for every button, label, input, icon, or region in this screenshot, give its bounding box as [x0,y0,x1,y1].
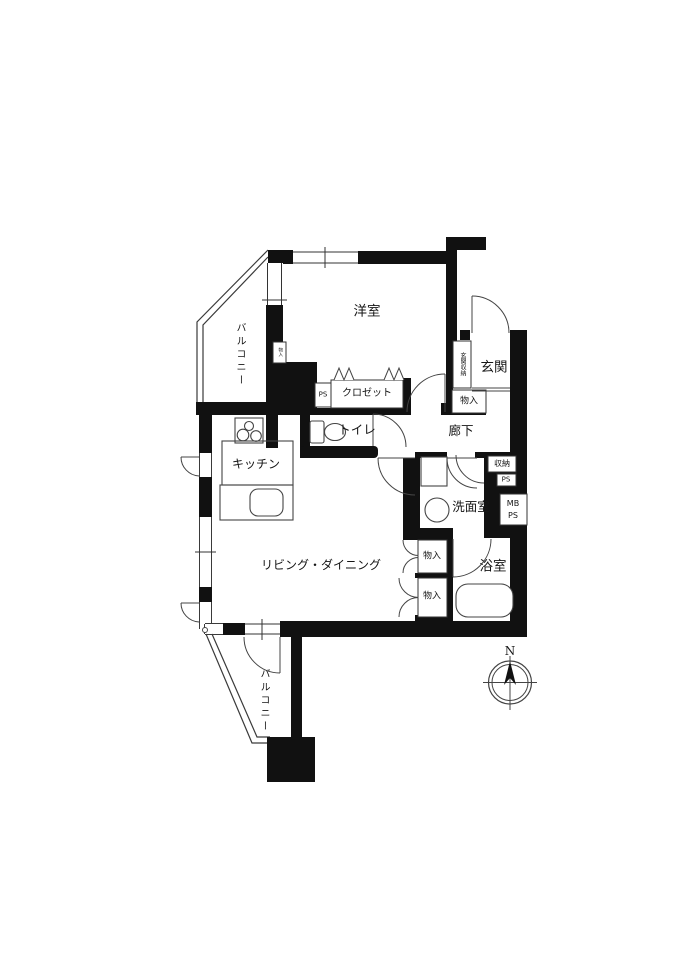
toilet-door-arc [373,414,406,447]
kitchen-counter-lower [220,485,293,520]
wash-basin [425,498,449,522]
corner-hinge-dot [203,628,208,633]
closet-fold-marks [334,368,404,380]
label-compass-north: N [505,645,516,657]
label-living-dining: リビング・ダイニング [261,559,381,571]
balcony-upper-outline [197,250,268,403]
storage-lower-fold-arc [399,578,419,598]
bathtub [456,584,513,617]
burner [251,431,262,442]
bedroom-door-arc [407,374,445,412]
label-meter-box-ps: PS [508,512,518,520]
hall-storage-door-arc [456,455,484,483]
label-wall-tag: 物入 [277,348,282,357]
burner [245,422,254,431]
storage-upper-fold-arc [403,540,419,556]
label-entrance-cabinet: 物入 [460,398,478,407]
storage-upper-fold-arc [403,558,419,574]
floorplan-page: 洋室 バルコニー 玄関 玄関収納 物入 クロゼット PS トイレ 廊下 キッチン… [0,0,690,976]
floorplan-drawing [0,0,690,976]
storage-lower-fold-arc [399,598,419,618]
label-closet: クロゼット [342,389,392,399]
label-storage-upper: 物入 [423,553,441,562]
label-bathroom: 浴室 [480,560,507,574]
kitchen-sink [250,489,283,516]
label-entrance: 玄関 [481,361,508,375]
label-kitchen: キッチン [232,458,280,470]
label-toilet: トイレ [338,424,376,437]
label-balcony-bottom: バルコニー [258,669,268,734]
washroom-fixtures [421,457,449,522]
side-door2-arc [181,603,199,622]
label-hallway: 廊下 [448,425,473,438]
label-entrance-tall-cabinet: 玄関収納 [459,352,465,376]
label-hall-ps: PS [502,477,511,484]
label-meter-box-mb: MB [507,500,519,508]
washer-space [421,457,447,486]
toilet-tank [310,421,324,443]
front-door-arc [472,296,509,333]
label-washroom: 洗面室 [452,501,490,514]
label-balcony-top: バルコニー [234,323,244,388]
side-door1-arc [181,457,199,476]
label-closet-ps: PS [319,392,328,399]
burner [237,429,249,441]
label-western-room: 洋室 [354,305,381,319]
label-storage-lower: 物入 [423,593,441,602]
label-hall-storage: 収納 [494,460,510,468]
compass-rose [483,656,537,710]
